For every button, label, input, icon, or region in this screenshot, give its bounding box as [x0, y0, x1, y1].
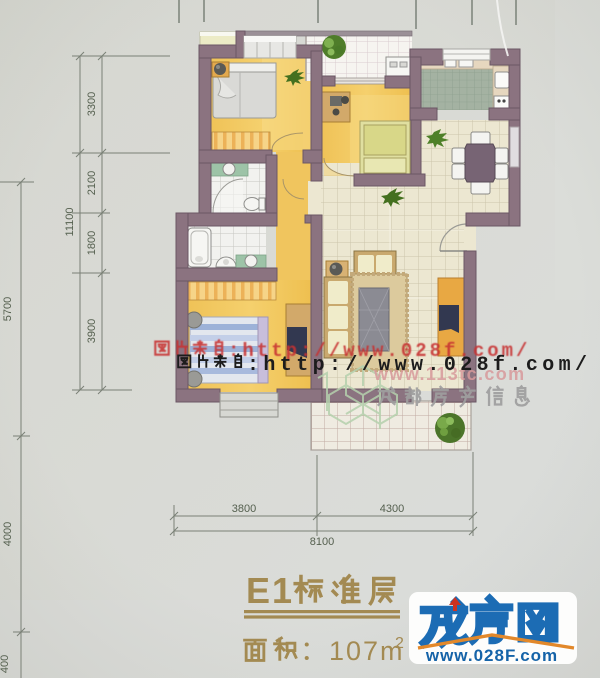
svg-text:3300: 3300	[86, 92, 98, 116]
svg-text:2: 2	[395, 635, 404, 652]
svg-text:：107m: ：107m	[300, 636, 405, 666]
svg-text:5700: 5700	[2, 297, 14, 321]
svg-text:1800: 1800	[86, 231, 98, 255]
svg-text:2100: 2100	[86, 171, 98, 195]
svg-text:3800: 3800	[232, 503, 256, 515]
svg-text:www.028F.com: www.028F.com	[425, 646, 558, 665]
svg-text:400: 400	[0, 655, 11, 673]
svg-text:8100: 8100	[310, 536, 334, 548]
svg-text:4300: 4300	[380, 503, 404, 515]
svg-text:3900: 3900	[86, 319, 98, 343]
svg-text:4000: 4000	[2, 522, 14, 546]
svg-text::http://www.028f.com/: :http://www.028f.com/	[247, 354, 591, 377]
svg-text:11100: 11100	[64, 208, 76, 237]
svg-text:E1: E1	[246, 570, 294, 611]
